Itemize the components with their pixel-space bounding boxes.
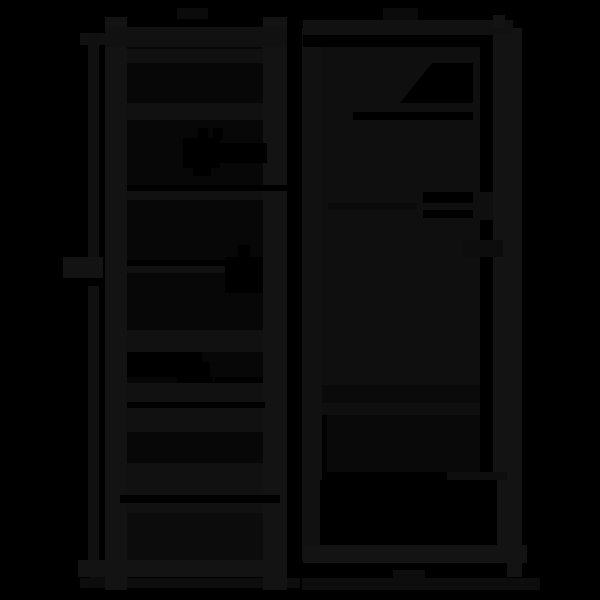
cabinet-right-foot-notch <box>497 563 507 577</box>
dimension-line-lower <box>88 286 99 560</box>
cabinet-top-tab <box>383 8 418 20</box>
rack-top-beam <box>105 27 287 47</box>
dimension-line-upper <box>88 33 99 257</box>
hinge-notch <box>463 240 503 257</box>
rack-shelf <box>127 103 263 120</box>
shelf-insert-icon <box>127 352 202 377</box>
door-gap-bridge <box>480 192 493 220</box>
cabinet-top-beam <box>303 20 513 35</box>
rack-right-post <box>263 17 287 577</box>
rack-shelf <box>127 463 263 495</box>
dimension-mid-tick <box>63 257 103 278</box>
door-handle-slot <box>423 192 473 203</box>
cabinet-left-frame <box>302 28 322 560</box>
shelf-insert-icon-bar <box>215 377 263 383</box>
push-arrow-icon-prong <box>198 128 208 140</box>
rack-shelf <box>127 330 263 352</box>
cabinet-under-beam-gap <box>303 35 480 47</box>
door-gap-bridge-lower <box>447 472 507 480</box>
rack-shelf <box>127 408 263 432</box>
rack-bottom-rail <box>105 560 287 577</box>
under-door-recess <box>327 415 480 472</box>
shelf-edge-line <box>127 402 265 408</box>
door-gap <box>480 35 493 543</box>
cabinet-top-cap <box>493 15 505 28</box>
door-mid-seam <box>328 203 417 210</box>
floor-line-right <box>302 578 540 590</box>
rack-left-leg <box>105 577 127 590</box>
illustration-canvas <box>0 0 600 600</box>
push-arrow-icon-prong <box>213 128 223 140</box>
rack-shelf <box>127 383 263 402</box>
door-top-seam-line <box>353 112 473 120</box>
shelf-insert-icon-bar <box>177 377 213 383</box>
push-arrow-icon-tail <box>207 143 267 163</box>
rack-top-tab <box>177 8 208 19</box>
cabinet-foot-bump <box>393 570 425 578</box>
cam-lock-icon <box>225 257 263 293</box>
cabinet-bottom-rail <box>303 545 527 563</box>
rack-right-leg <box>263 577 287 590</box>
cabinet-drawer <box>320 480 497 545</box>
rack-left-post <box>105 17 127 577</box>
rack-lower-panel <box>127 513 263 560</box>
shelf-edge-line <box>120 495 280 503</box>
cam-lock-icon-stem <box>238 245 250 257</box>
door-lower-seam <box>322 385 480 403</box>
rack-shelf <box>127 49 263 63</box>
cabinet-right-panel <box>493 28 522 577</box>
shelf-insert-icon-step <box>200 362 210 377</box>
door-handle-slot <box>423 210 473 218</box>
push-arrow-icon-foot <box>193 168 211 176</box>
shelf-edge-line <box>127 185 287 191</box>
rack-shelf <box>127 503 263 513</box>
